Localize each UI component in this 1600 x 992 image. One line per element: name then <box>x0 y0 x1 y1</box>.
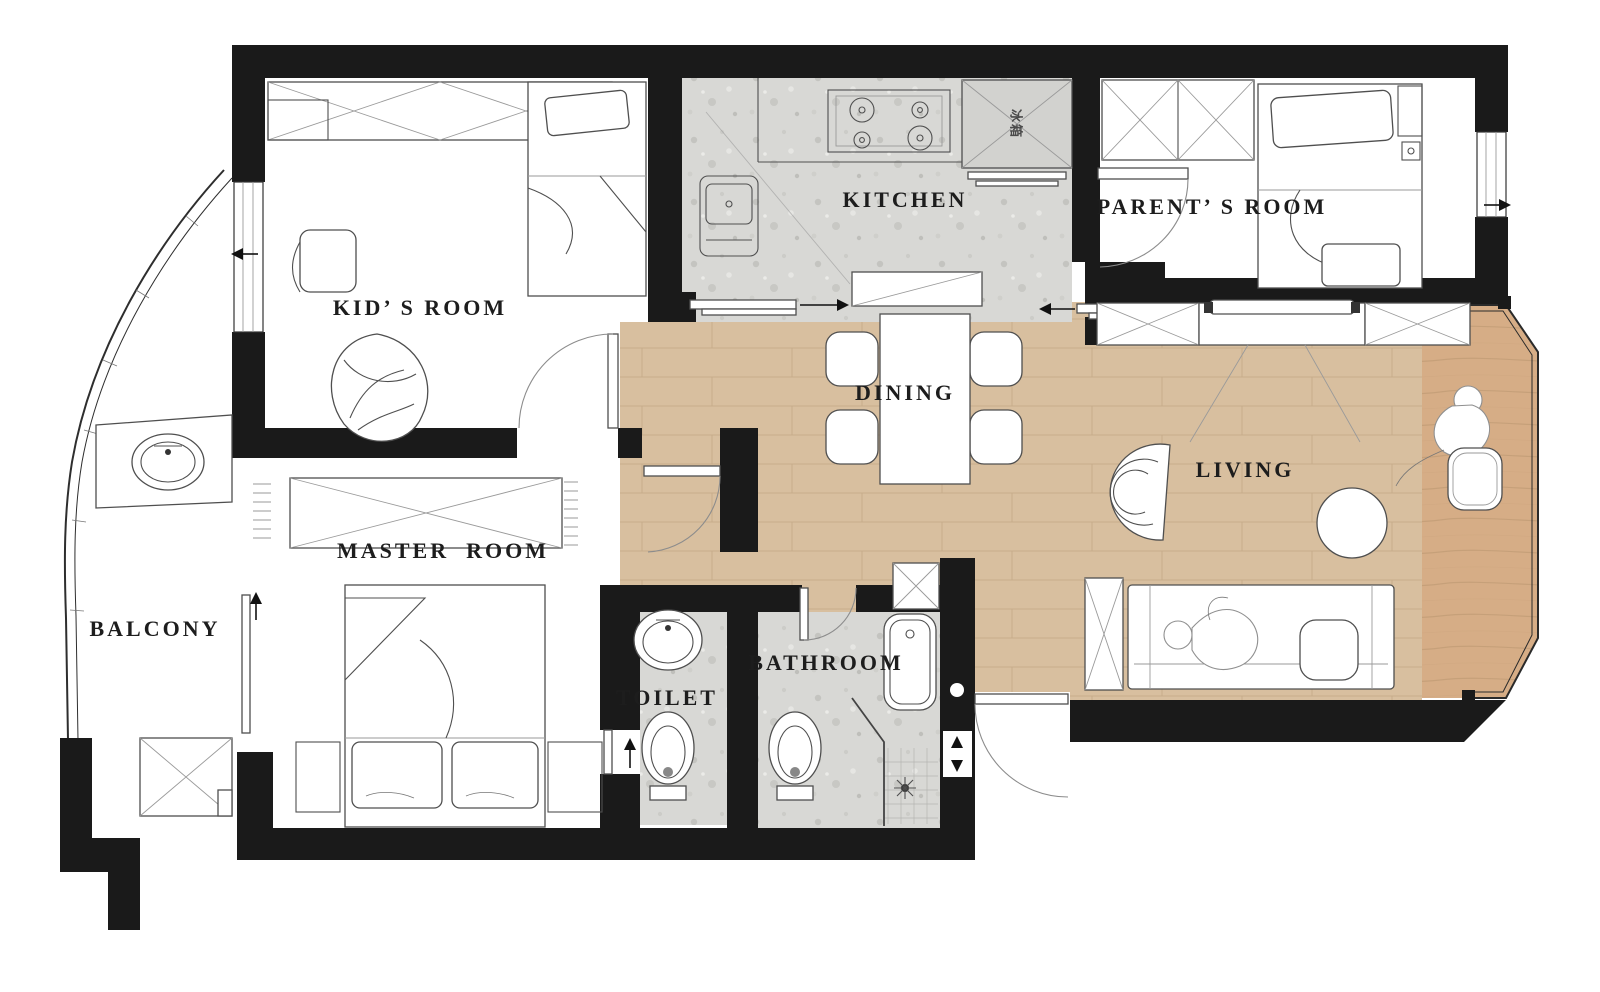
label-kitchen: KITCHEN <box>843 187 968 213</box>
dining-chair-icon <box>826 410 878 464</box>
wall-pipe-icon <box>950 683 964 697</box>
corridor-floor <box>975 612 1072 700</box>
desk-chair-icon <box>293 230 357 292</box>
parent-window <box>1477 132 1511 217</box>
wall-balcony-step <box>60 738 140 930</box>
dining-chair-icon <box>826 332 878 386</box>
wall-hall-master <box>720 428 758 552</box>
sliding-door-icon <box>604 730 636 774</box>
wc-icon <box>642 712 694 800</box>
balcony-sink-icon <box>96 415 232 508</box>
entry-foyer <box>975 692 1070 828</box>
console-icon <box>852 272 982 306</box>
wall-parent-door-chunk <box>1085 262 1165 306</box>
label-master-room: MASTER ROOM <box>337 538 549 564</box>
basin-icon <box>634 610 702 670</box>
storage-cabinet-icon <box>140 738 232 816</box>
label-parents-room: PARENT’ S ROOM <box>1097 194 1328 220</box>
pouf-icon <box>1448 448 1502 510</box>
wall-living-bottom <box>1070 700 1464 742</box>
floor-plan-drawing <box>0 0 1600 992</box>
label-toilet: TOILET <box>616 685 718 711</box>
kid-window <box>231 182 263 332</box>
side-cabinet-icon <box>1085 578 1123 690</box>
label-kids-room: KID’ S ROOM <box>333 295 507 321</box>
wall-kid-left-upper <box>232 78 265 182</box>
single-bed-icon <box>528 82 646 296</box>
wc-icon <box>769 712 821 800</box>
wall-bath-top-left <box>758 585 802 612</box>
wall-toilet-right <box>727 585 758 828</box>
wall-kid-left-lower <box>232 332 265 428</box>
wall-bay-bottom <box>1464 700 1506 742</box>
bench-icon <box>296 742 340 812</box>
kids-room-furniture <box>268 82 646 441</box>
wall-parent-right-lower <box>1475 217 1508 278</box>
mirror-board-icon <box>242 592 262 733</box>
double-bed-icon <box>345 585 545 827</box>
bean-bag-icon <box>331 334 427 441</box>
label-living: LIVING <box>1196 457 1295 483</box>
label-dining: DINING <box>855 380 955 406</box>
wall-bottom-main <box>237 828 975 860</box>
washing-machine-icon <box>893 563 939 609</box>
wall-kid-bottom-corner <box>618 428 642 458</box>
wall-top <box>232 45 1508 78</box>
label-bathroom: BATHROOM <box>748 650 904 676</box>
wall-kitchen-parent <box>1072 45 1100 262</box>
dining-chair-icon <box>970 410 1022 464</box>
curtain-hatch-icon <box>253 484 271 538</box>
entry-door <box>975 692 1070 828</box>
wall-balcony-sep <box>237 752 273 828</box>
pouf-icon <box>1300 620 1358 680</box>
floor-plan: KID’ S ROOM KITCHEN PARENT’ S ROOM DININ… <box>0 0 1600 992</box>
wall-kitchen-entry <box>648 292 696 322</box>
label-fridge: 冰箱 <box>1008 109 1027 139</box>
bench-icon <box>548 742 602 812</box>
wardrobe-icon <box>1102 80 1254 160</box>
wall-kid-right <box>648 78 682 292</box>
wall-parent-right-upper <box>1475 45 1508 132</box>
sliding-door-arrows-icon <box>943 731 972 777</box>
double-bed-icon <box>1258 84 1422 288</box>
dining-chair-icon <box>970 332 1022 386</box>
door-swing-icon <box>519 334 618 428</box>
label-balcony: BALCONY <box>89 616 220 642</box>
round-table-icon <box>1317 488 1387 558</box>
wall-toilet-left-lower <box>600 774 640 828</box>
